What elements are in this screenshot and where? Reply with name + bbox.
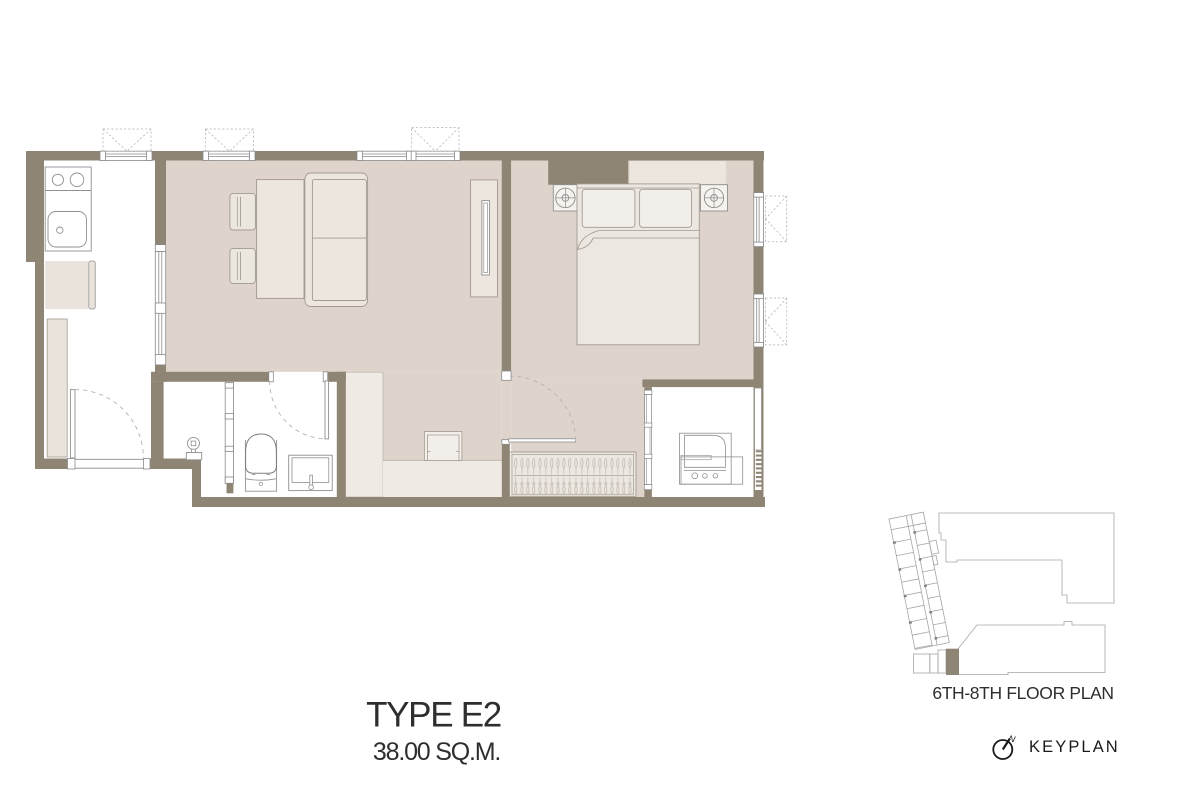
svg-text:38.00 SQ.M.: 38.00 SQ.M. [373,738,500,766]
svg-text:KEYPLAN: KEYPLAN [1029,738,1120,756]
svg-text:TYPE E2: TYPE E2 [366,696,501,735]
svg-text:6TH-8TH FLOOR PLAN: 6TH-8TH FLOOR PLAN [932,683,1113,703]
